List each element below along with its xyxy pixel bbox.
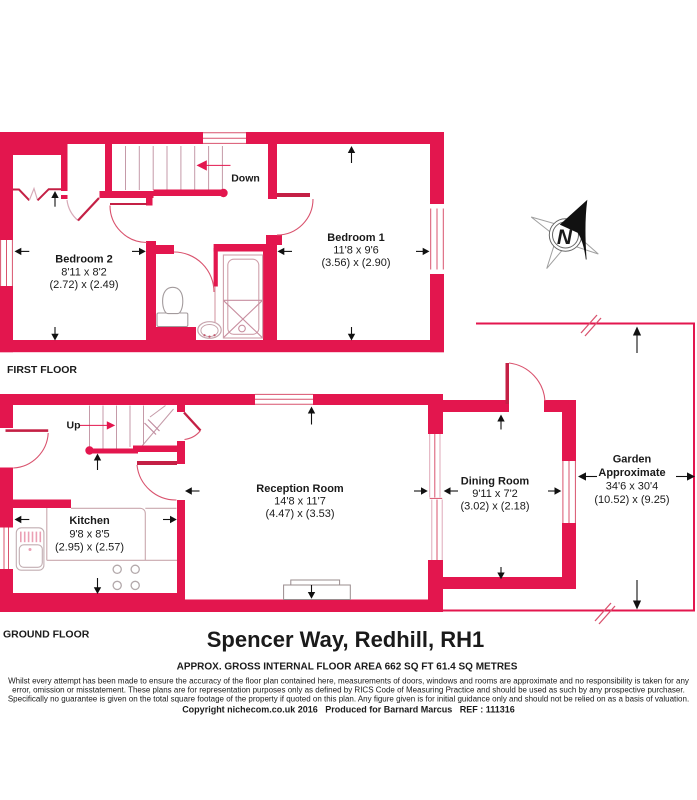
svg-text:8'11 x 8'2: 8'11 x 8'2 [61,267,107,279]
svg-text:N: N [557,226,573,249]
svg-text:Spencer Way, Redhill, RH1: Spencer Way, Redhill, RH1 [207,627,485,652]
svg-text:Garden: Garden [613,454,652,466]
svg-text:(4.47) x (3.53): (4.47) x (3.53) [265,508,334,520]
svg-text:Approximate: Approximate [598,467,665,479]
svg-text:(3.56) x (2.90): (3.56) x (2.90) [321,257,390,269]
svg-text:Bedroom 1: Bedroom 1 [327,232,384,244]
svg-text:GROUND FLOOR: GROUND FLOOR [3,628,90,640]
svg-text:34'6 x 30'4: 34'6 x 30'4 [606,481,659,493]
svg-text:9'8 x 8'5: 9'8 x 8'5 [69,529,109,541]
svg-text:(10.52) x (9.25): (10.52) x (9.25) [594,494,669,506]
svg-text:APPROX. GROSS INTERNAL FLOOR A: APPROX. GROSS INTERNAL FLOOR AREA 662 SQ… [177,662,518,673]
svg-text:error, omission or misstatemen: error, omission or misstatement. These p… [12,686,685,695]
svg-text:Bedroom 2: Bedroom 2 [55,254,112,266]
svg-text:Dining Room: Dining Room [461,476,530,488]
svg-text:(2.95) x (2.57): (2.95) x (2.57) [55,542,124,554]
svg-text:Whilst every attempt has been: Whilst every attempt has been made to en… [8,677,689,686]
svg-text:11'8 x 9'6: 11'8 x 9'6 [333,245,379,257]
svg-text:(3.02) x (2.18): (3.02) x (2.18) [460,501,529,513]
svg-text:Kitchen: Kitchen [69,515,110,527]
svg-text:Copyright nichecom.co.uk 2016: Copyright nichecom.co.uk 2016 Produced f… [182,705,515,715]
svg-text:Up: Up [67,420,81,432]
svg-text:Down: Down [231,173,260,185]
svg-text:9'11 x 7'2: 9'11 x 7'2 [472,488,518,500]
svg-text:Reception Room: Reception Room [256,483,344,495]
svg-text:FIRST FLOOR: FIRST FLOOR [7,364,77,376]
svg-text:Specifically no guarantee is g: Specifically no guarantee is given on th… [8,695,689,704]
svg-text:(2.72) x (2.49): (2.72) x (2.49) [49,279,118,291]
svg-text:14'8 x 11'7: 14'8 x 11'7 [274,496,326,508]
